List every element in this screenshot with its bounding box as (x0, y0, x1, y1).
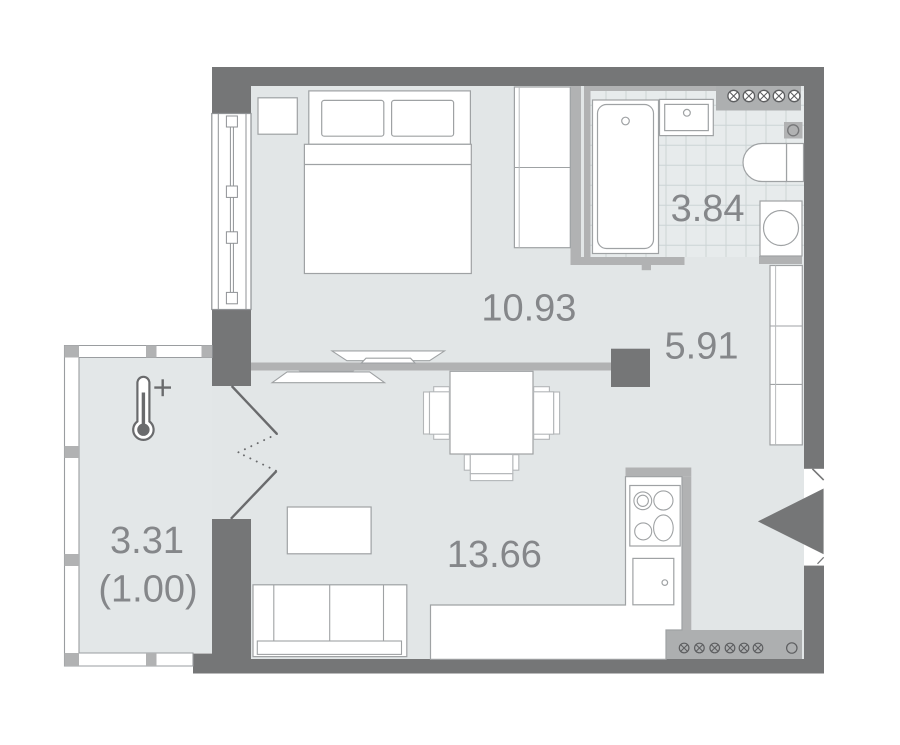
svg-text:3.84: 3.84 (671, 188, 745, 230)
svg-text:3.31: 3.31 (110, 520, 184, 562)
svg-text:5.91: 5.91 (665, 325, 739, 367)
svg-text:13.66: 13.66 (447, 534, 542, 576)
svg-text:10.93: 10.93 (481, 288, 576, 330)
svg-text:(1.00): (1.00) (98, 569, 197, 611)
